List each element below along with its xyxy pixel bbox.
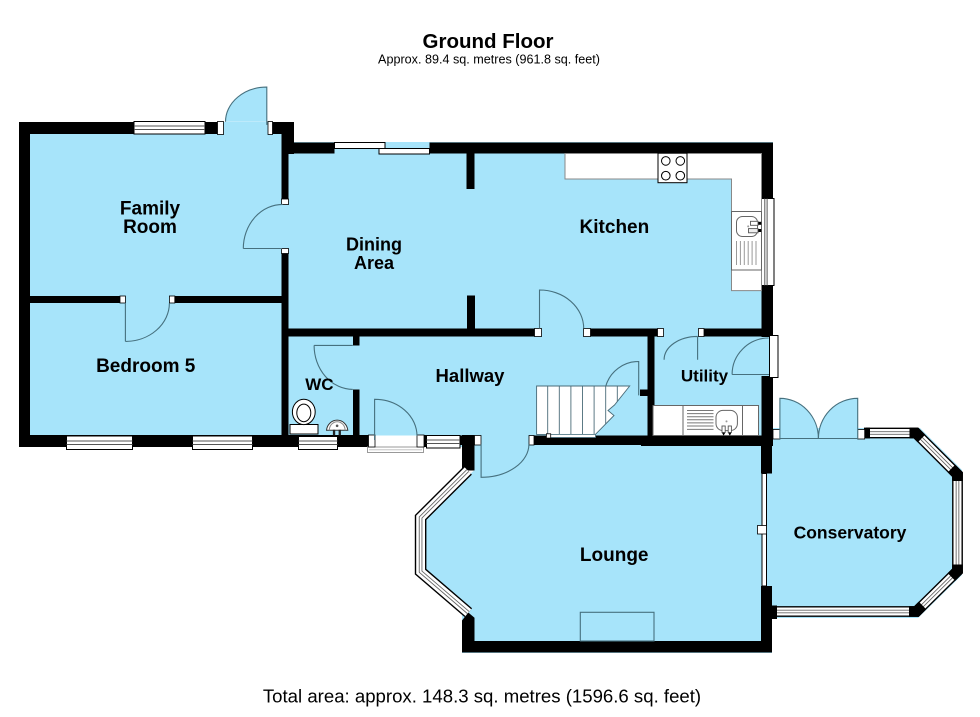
svg-text:Utility: Utility [681, 367, 729, 386]
svg-text:Dining: Dining [346, 235, 402, 255]
svg-text:Ground Floor: Ground Floor [423, 30, 554, 53]
svg-text:Hallway: Hallway [436, 365, 506, 386]
svg-text:Kitchen: Kitchen [580, 217, 650, 238]
svg-text:Lounge: Lounge [580, 545, 649, 566]
svg-text:Room: Room [123, 217, 177, 238]
svg-text:Conservatory: Conservatory [794, 522, 907, 542]
svg-text:Approx. 89.4 sq. metres (961.8: Approx. 89.4 sq. metres (961.8 sq. feet) [378, 53, 600, 67]
svg-text:Bedroom 5: Bedroom 5 [96, 356, 196, 377]
svg-text:WC: WC [305, 375, 333, 394]
svg-text:Total area: approx. 148.3 sq.: Total area: approx. 148.3 sq. metres (15… [263, 686, 701, 707]
svg-text:Area: Area [354, 253, 395, 273]
